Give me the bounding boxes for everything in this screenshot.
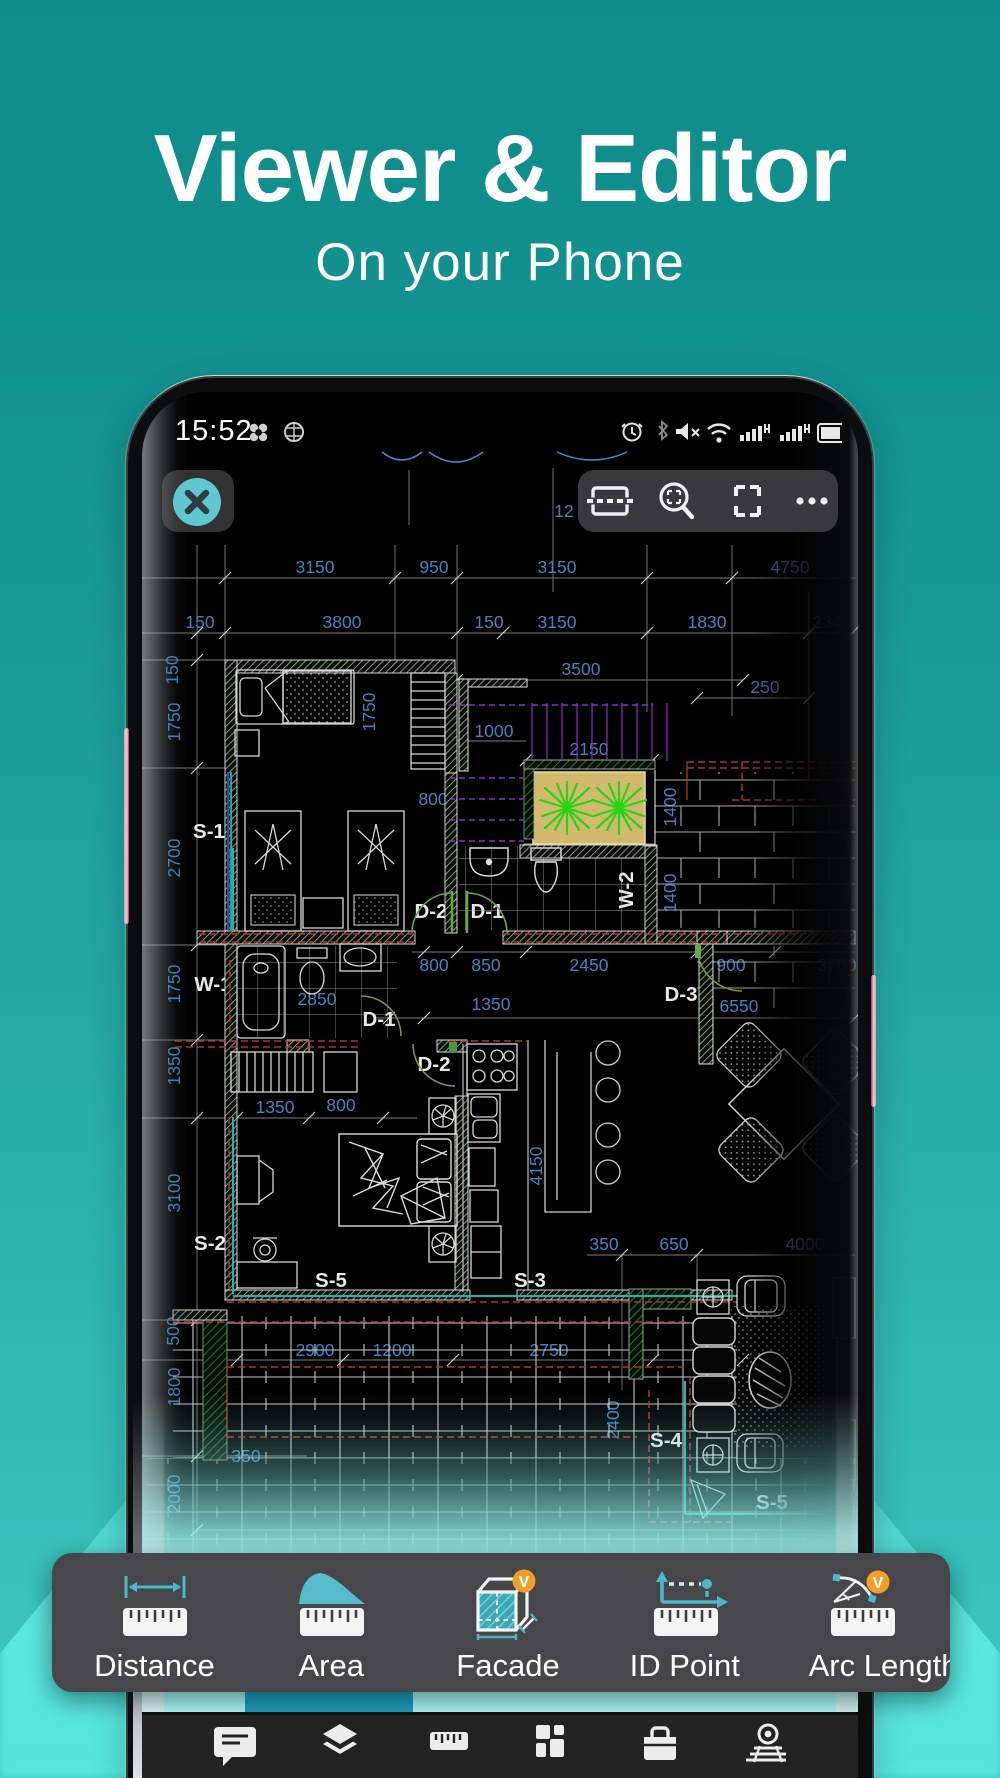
svg-text:12: 12	[554, 501, 573, 521]
svg-text:3150: 3150	[296, 557, 335, 577]
svg-text:3800: 3800	[323, 612, 362, 632]
svg-text:800: 800	[419, 955, 448, 975]
svg-text:1750: 1750	[359, 692, 379, 731]
svg-text:2150: 2150	[570, 739, 609, 759]
svg-text:1830: 1830	[688, 612, 727, 632]
svg-text:D-3: D-3	[664, 983, 697, 1006]
svg-text:S-2: S-2	[194, 1232, 226, 1255]
svg-text:V: V	[519, 1574, 530, 1591]
svg-text:850: 850	[471, 955, 500, 975]
svg-text:1000: 1000	[475, 721, 514, 741]
svg-text:3500: 3500	[562, 659, 601, 679]
svg-text:S-3: S-3	[514, 1269, 546, 1292]
svg-text:S-5: S-5	[315, 1269, 347, 1292]
svg-text:800: 800	[418, 789, 447, 809]
svg-text:V: V	[872, 1575, 883, 1592]
svg-text:D-2: D-2	[417, 1053, 450, 1076]
svg-text:1350: 1350	[472, 994, 511, 1014]
svg-text:150: 150	[474, 612, 503, 632]
svg-text:3150: 3150	[538, 612, 577, 632]
svg-text:4150: 4150	[526, 1146, 546, 1185]
svg-text:3150: 3150	[538, 557, 577, 577]
svg-text:S-1: S-1	[193, 820, 225, 843]
svg-text:D-2: D-2	[414, 900, 447, 923]
svg-text:650: 650	[659, 1234, 688, 1254]
svg-text:950: 950	[419, 557, 448, 577]
svg-text:800: 800	[326, 1095, 355, 1115]
svg-text:150: 150	[185, 612, 214, 632]
svg-text:1350: 1350	[256, 1097, 295, 1117]
svg-text:2450: 2450	[570, 955, 609, 975]
svg-text:350: 350	[589, 1234, 618, 1254]
